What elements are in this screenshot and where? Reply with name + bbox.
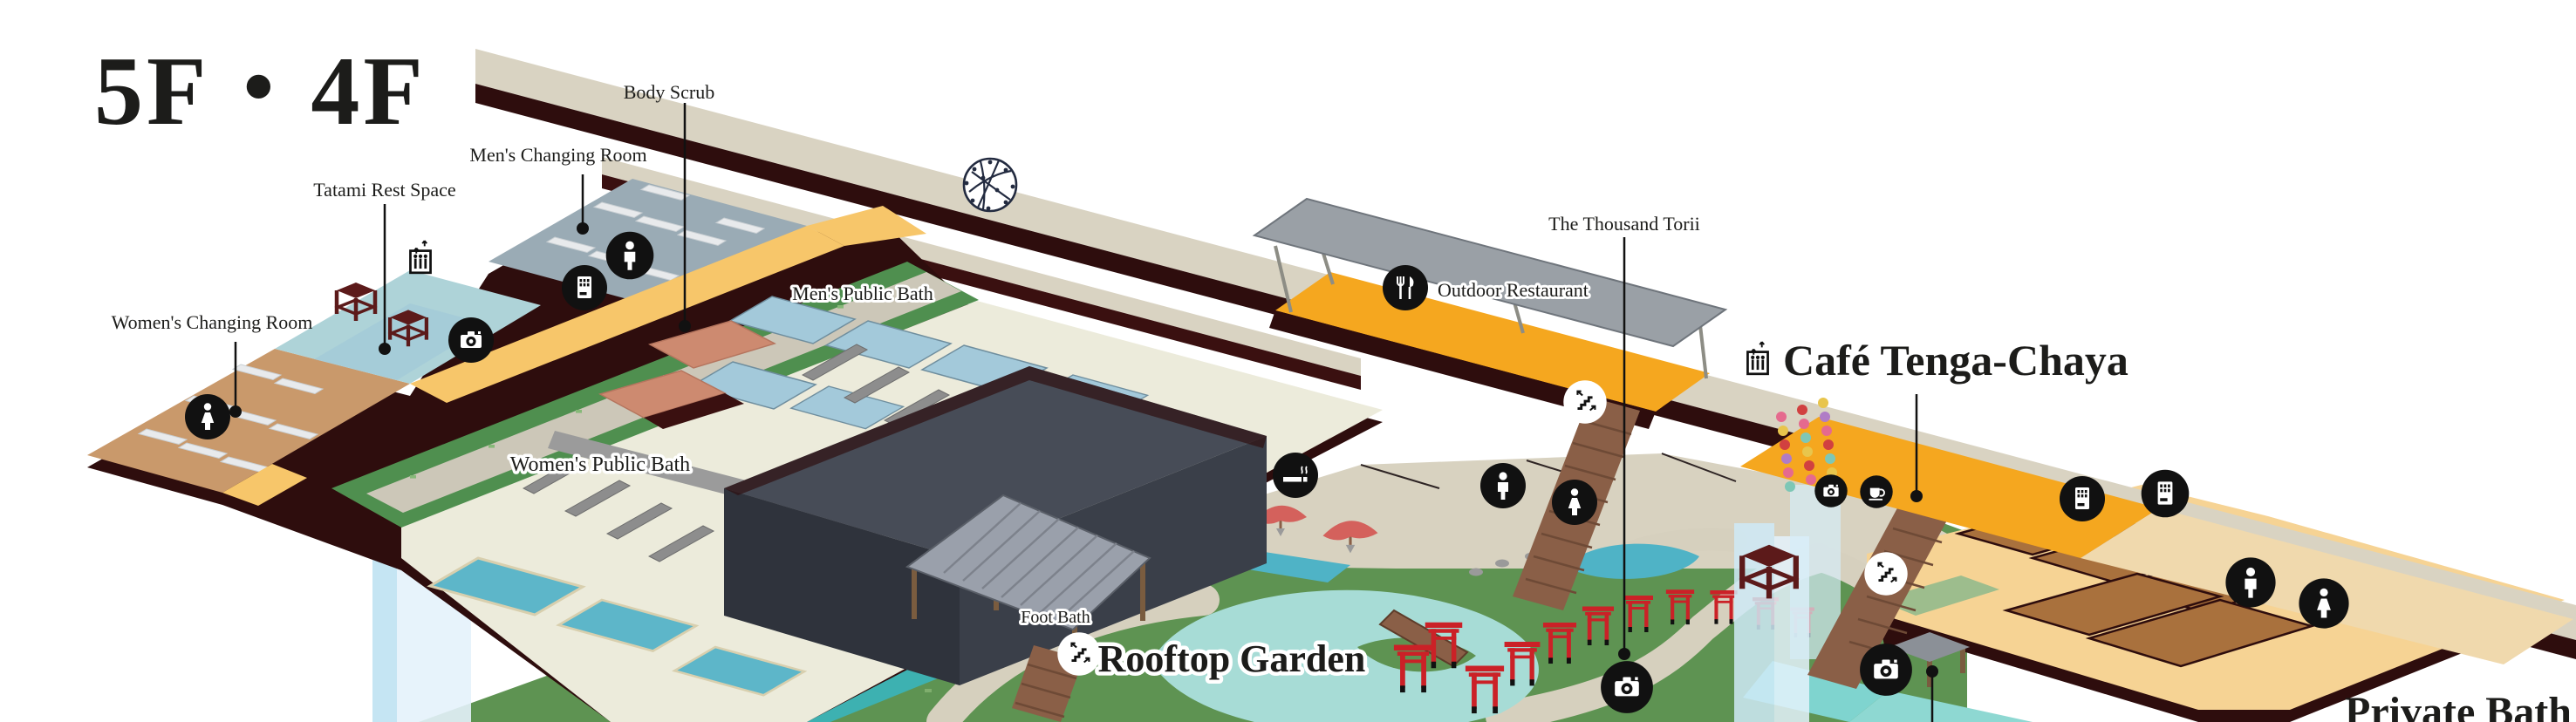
elevator-icon — [1747, 342, 1767, 374]
label-outdoor-restaurant: Outdoor Restaurant — [1438, 279, 1589, 301]
camera-icon — [448, 317, 494, 363]
label-cafe-tenga-chaya: Café Tenga-Chaya — [1783, 336, 2128, 385]
stairs-icon — [1057, 632, 1100, 675]
floor-map-page: 5F・4F Body Scrub Men's Changing Room Tat… — [0, 0, 2576, 722]
floor-map-illustration: 5F・4F Body Scrub Men's Changing Room Tat… — [0, 0, 2576, 722]
camera-icon — [1601, 661, 1653, 713]
label-private-bath: Private Bath — [2345, 689, 2572, 722]
label-tatami-rest-space: Tatami Rest Space — [313, 179, 455, 201]
label-rooftop-garden: Rooftop Garden — [1098, 637, 1366, 680]
stairs-icon — [1864, 552, 1907, 595]
womens-room-icon — [1552, 480, 1597, 525]
smoking-icon — [1273, 453, 1318, 498]
coffee-icon — [1860, 475, 1892, 507]
mens-room-icon — [606, 232, 654, 280]
camera-icon — [1860, 644, 1912, 696]
camera-icon — [1814, 474, 1847, 507]
page-title: 5F・4F — [94, 37, 427, 146]
label-foot-bath: Foot Bath — [1021, 608, 1090, 627]
restaurant-icon — [1383, 265, 1428, 310]
vending-machine-icon — [562, 265, 607, 310]
mens-room-icon — [2225, 557, 2275, 607]
stairs-icon — [1563, 380, 1606, 423]
elevator-icon — [410, 241, 430, 273]
label-thousand-torii: The Thousand Torii — [1548, 213, 1700, 235]
vending-machine-icon — [2060, 476, 2105, 521]
label-body-scrub: Body Scrub — [624, 81, 715, 103]
label-mens-changing-room: Men's Changing Room — [469, 144, 646, 166]
label-womens-changing-room: Women's Changing Room — [112, 311, 313, 333]
mens-room-icon — [1480, 463, 1526, 508]
label-womens-public-bath: Women's Public Bath — [510, 453, 690, 476]
womens-room-icon — [185, 394, 230, 439]
vending-machine-icon — [2142, 470, 2190, 518]
lattice-sphere-icon — [964, 159, 1016, 211]
womens-room-icon — [2299, 578, 2348, 628]
label-mens-public-bath: Men's Public Bath — [792, 283, 933, 304]
